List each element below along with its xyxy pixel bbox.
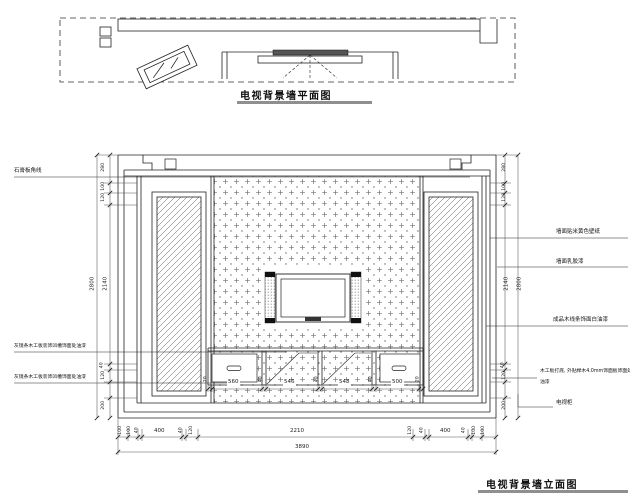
crown-notch-left xyxy=(165,159,176,169)
dim-left-120: 120 xyxy=(102,193,107,202)
strip-cap xyxy=(351,272,361,277)
dim-cab-40b: 40 xyxy=(316,376,321,382)
plan-tv xyxy=(273,50,348,55)
dim-left-2800: 2800 xyxy=(90,277,96,291)
plan-view-title: 电视背景墙平面图 xyxy=(240,87,332,102)
label-gypsum-corner-line: 石膏板角线 xyxy=(14,168,42,175)
dim-left-2140: 2140 xyxy=(103,277,109,291)
plan-wall-slab xyxy=(118,19,480,31)
dim-bottom-400R: 400 xyxy=(440,429,451,435)
tv-assembly xyxy=(262,267,364,329)
dim-right-2140: 2140 xyxy=(504,277,510,291)
tv-speaker-bar xyxy=(305,317,321,321)
dim-cab-20R: 20 xyxy=(417,376,422,382)
label-plywood-base-line1: 木工板打底, 外贴榉木4.0mm饰面板饰面处 xyxy=(540,369,630,375)
dim-left-280: 280 xyxy=(102,163,107,172)
dim-bottom-120R: 120 xyxy=(409,426,414,435)
dim-bottom-400L: 400 xyxy=(154,429,165,435)
dim-bottom-100a: 100 xyxy=(119,426,124,435)
dim-cab-548: 548 xyxy=(338,380,351,386)
dim-cab-20L: 20 xyxy=(205,376,210,382)
label-wallpaper: 墙面贴米黄色壁纸 xyxy=(556,229,600,236)
drawing-linework xyxy=(0,0,630,500)
label-latex-paint: 墙面乳胶漆 xyxy=(556,259,584,266)
dim-bottom-100c: 100 xyxy=(473,426,478,435)
dim-bottom-40a: 40 xyxy=(136,427,141,433)
plan-wall-step xyxy=(480,19,497,43)
plan-column-block-1 xyxy=(100,27,111,36)
dim-bottom-40c: 40 xyxy=(421,427,426,433)
dim-cab-40c: 40 xyxy=(370,376,375,382)
dim-left-200: 200 xyxy=(102,401,107,410)
strip-cap xyxy=(265,272,275,277)
dim-bottom-100b: 100 xyxy=(128,426,133,435)
dim-bottom-120L: 120 xyxy=(190,426,195,435)
strip-cap xyxy=(265,318,275,323)
dim-bottom-total-3890: 3890 xyxy=(295,445,309,451)
dim-cab-560: 560 xyxy=(227,380,240,386)
elevation-title-underline xyxy=(478,490,628,493)
strip-cap xyxy=(351,318,361,323)
dim-left-b120: 120 xyxy=(102,371,107,380)
plan-title-underline xyxy=(237,101,372,104)
tv-screen xyxy=(281,279,345,317)
label-left-finish-2: 灰镜条木工板装饰凹槽饰面处油漆 xyxy=(14,375,86,381)
dim-cab-500: 500 xyxy=(391,380,404,386)
tv-side-strip-left xyxy=(265,272,275,323)
dim-left-40: 40 xyxy=(101,362,106,368)
dim-bottom-40b: 40 xyxy=(180,427,185,433)
label-tv-cabinet: 电视柜 xyxy=(556,400,573,407)
mirror-panel-right xyxy=(424,192,478,396)
dim-right-120: 120 xyxy=(503,193,508,202)
crown-notch-right xyxy=(450,159,461,169)
plan-column-block-2 xyxy=(100,38,111,47)
dim-right-40: 40 xyxy=(502,362,507,368)
dim-right-b120: 120 xyxy=(503,371,508,380)
dim-cab-546: 546 xyxy=(283,380,296,386)
plan-view-linework xyxy=(60,18,515,89)
dim-bottom-2210: 2210 xyxy=(290,429,304,435)
tv-side-strip-right xyxy=(351,272,361,323)
dim-bottom-100d: 100 xyxy=(482,426,487,435)
dim-right-280: 280 xyxy=(503,163,508,172)
elevation-view-title: 电视背景墙立面图 xyxy=(486,476,578,491)
dim-cab-40a: 40 xyxy=(260,376,265,382)
dim-left-100: 100 xyxy=(102,182,107,191)
dim-right-2800: 2800 xyxy=(517,277,523,291)
cad-sheet: 电视背景墙平面图 电视背景墙立面图 石膏板角线 灰镜条木工板装饰凹槽饰面处油漆 … xyxy=(0,0,630,500)
label-wood-trim: 成品木线条饰面白油漆 xyxy=(553,317,608,324)
dim-right-100: 100 xyxy=(503,182,508,191)
mirror-panel-left xyxy=(152,192,206,396)
drawer-handle-left xyxy=(227,366,241,371)
label-plywood-base-line2: 油漆 xyxy=(540,380,550,386)
label-left-finish-1: 灰镜条木工板装饰凹槽饰面处油漆 xyxy=(14,344,86,350)
drawer-handle-right xyxy=(392,366,406,371)
dim-right-200: 200 xyxy=(503,401,508,410)
dim-bottom-40d: 40 xyxy=(463,427,468,433)
